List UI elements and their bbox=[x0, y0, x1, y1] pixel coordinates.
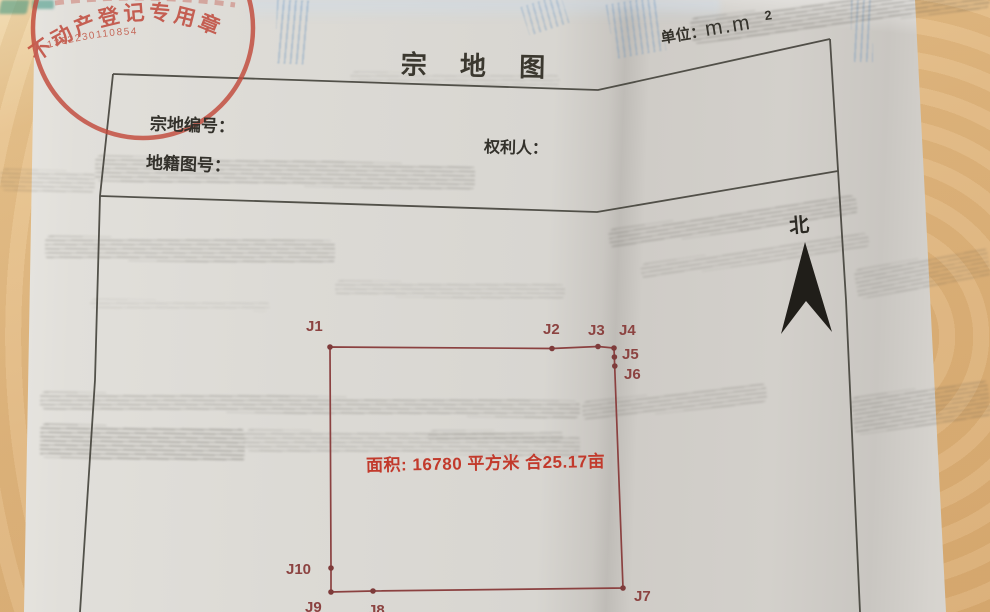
boundary-point-dot bbox=[328, 565, 334, 571]
field-rights-holder-label: 权利人： bbox=[484, 133, 549, 159]
boundary-point-label-j3: J3 bbox=[588, 322, 605, 339]
boundary-point-label-j2: J2 bbox=[543, 321, 560, 338]
parcel-area-text: 面积: 16780 平方米 合25.17亩 bbox=[366, 447, 606, 476]
boundary-point-label-j10: J10 bbox=[286, 561, 311, 578]
field-cadastral-number-label: 地籍图号： bbox=[146, 148, 232, 177]
boundary-point-label-j1: J1 bbox=[306, 318, 323, 335]
document-graphics: 不动产登记专用章 1302230110854 bbox=[0, 0, 990, 612]
table-divider-line bbox=[100, 171, 838, 212]
boundary-point-dot bbox=[612, 363, 618, 369]
boundary-point-dot bbox=[327, 344, 333, 350]
boundary-point-dot bbox=[549, 346, 555, 352]
boundary-point-label-j6: J6 bbox=[624, 366, 641, 383]
boundary-point-dot bbox=[620, 585, 626, 591]
boundary-point-label-j7: J7 bbox=[634, 588, 651, 605]
north-arrow-icon bbox=[781, 242, 832, 334]
boundary-point-dot bbox=[611, 345, 617, 351]
boundary-point-label-j5: J5 bbox=[622, 346, 639, 363]
boundary-point-dot bbox=[612, 354, 618, 360]
north-label: 北 bbox=[788, 208, 810, 239]
document-title: 宗 地 图 bbox=[372, 44, 588, 85]
photo-of-parcel-map-document: 不动产登记专用章 1302230110854 宗 地 图 单位：m.m2 宗地编… bbox=[0, 0, 990, 612]
boundary-point-dot bbox=[595, 344, 601, 350]
boundary-point-dot bbox=[328, 589, 334, 595]
table-border-left bbox=[80, 74, 113, 612]
field-parcel-number-label: 宗地编号： bbox=[150, 110, 236, 138]
boundary-point-dot bbox=[370, 588, 376, 594]
boundary-point-label-j9: J9 bbox=[305, 599, 322, 612]
boundary-point-label-j8: J8 bbox=[368, 602, 385, 612]
table-border-right bbox=[830, 39, 860, 612]
boundary-point-label-j4: J4 bbox=[619, 322, 636, 339]
